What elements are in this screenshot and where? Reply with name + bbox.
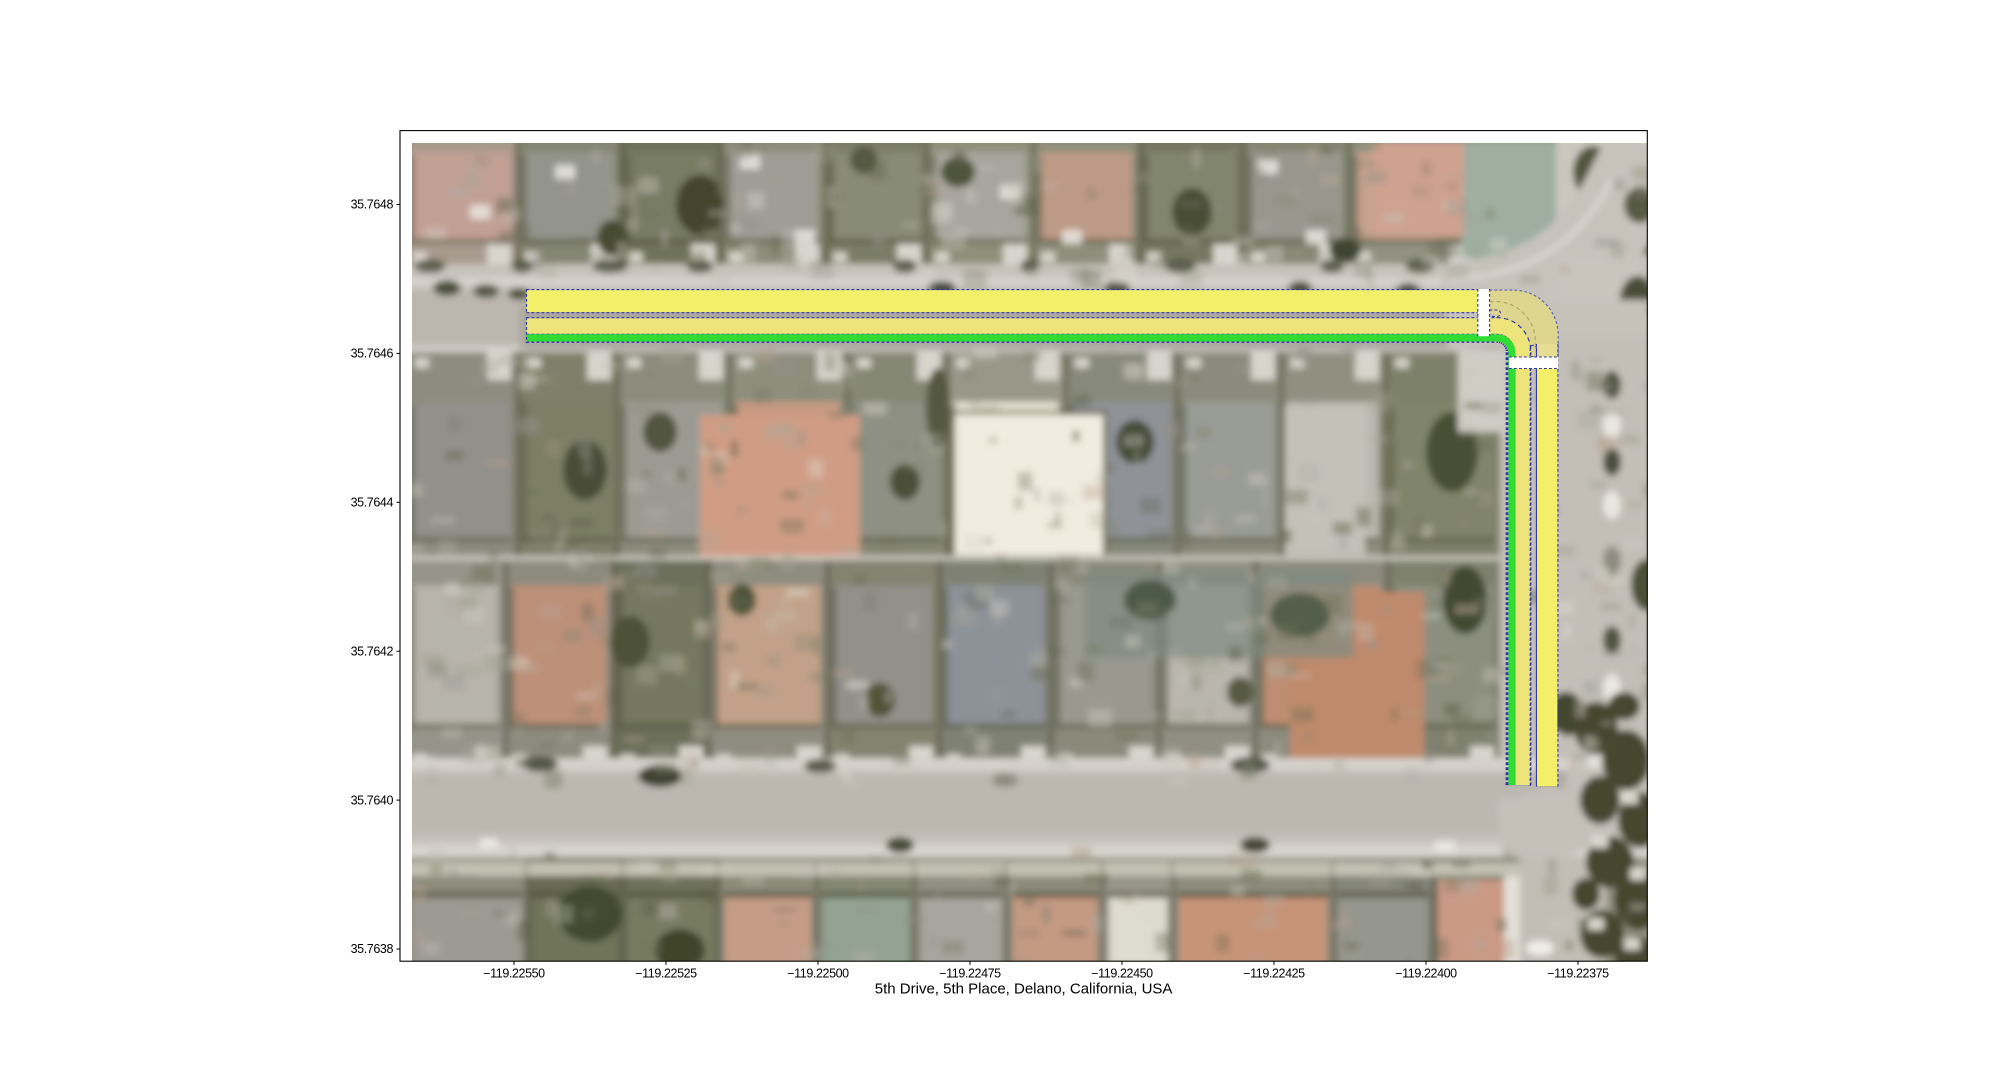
svg-text:35.7646: 35.7646: [351, 347, 394, 361]
svg-text:35.7642: 35.7642: [351, 644, 394, 658]
svg-text:35.7638: 35.7638: [351, 942, 394, 956]
svg-text:−119.22375: −119.22375: [1547, 967, 1609, 981]
svg-text:−119.22525: −119.22525: [635, 967, 697, 981]
svg-text:−119.22500: −119.22500: [787, 967, 849, 981]
svg-text:5th Drive, 5th Place, Delano,: 5th Drive, 5th Place, Delano, California…: [875, 981, 1173, 998]
svg-text:35.7644: 35.7644: [351, 496, 394, 510]
svg-text:−119.22550: −119.22550: [483, 967, 545, 981]
svg-text:−119.22425: −119.22425: [1243, 967, 1305, 981]
svg-text:35.7640: 35.7640: [351, 793, 394, 807]
svg-text:35.7648: 35.7648: [351, 198, 394, 212]
svg-text:−119.22400: −119.22400: [1395, 967, 1457, 981]
svg-text:−119.22450: −119.22450: [1091, 967, 1153, 981]
svg-text:−119.22475: −119.22475: [939, 967, 1001, 981]
